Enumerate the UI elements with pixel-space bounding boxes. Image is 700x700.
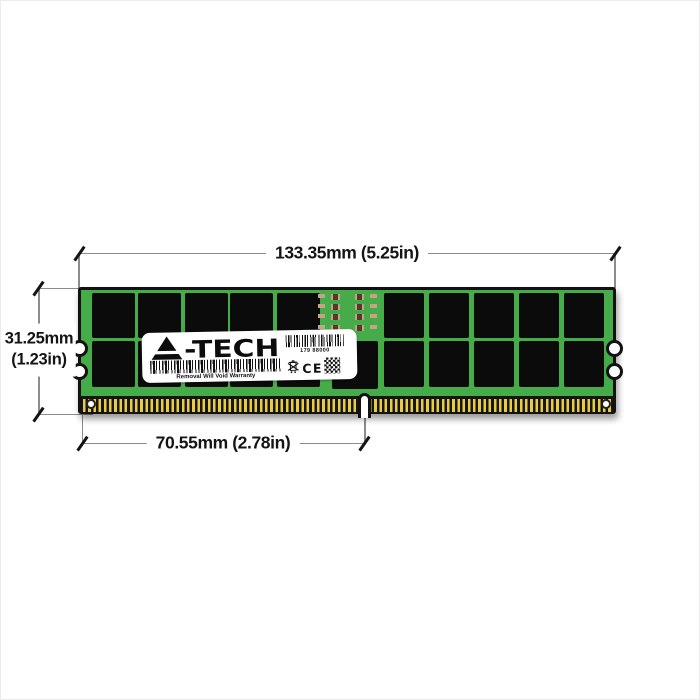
smd-capacitor [355,304,364,310]
height-dimension-label-in: (1.23in) [5,350,74,371]
atech-logo-icon: -TECH [150,333,282,361]
height-dimension-label-mm: 31.25mm [5,329,74,350]
smd-capacitor [318,314,325,318]
memory-chip [519,293,559,338]
key-notch [358,393,371,418]
edge-notch-icon [606,363,623,380]
product-image: 133.35mm (5.25in) 31.25mm (1.23in) 70.55… [0,0,700,700]
extension-line-right [614,253,616,288]
smd-capacitor [331,304,340,310]
memory-chip [564,293,604,338]
product-label: -TECH 179 88000 Removal Will Void Warran… [142,329,358,383]
memory-chip [384,341,424,387]
smd-capacitor [318,325,325,329]
mounting-hole-icon [601,399,611,409]
smd-capacitor [370,294,377,298]
smd-capacitor [355,294,364,300]
serial-number: 179 88000 [286,347,344,354]
memory-chip [138,293,181,338]
extension-line-left [78,253,80,288]
extension-line-top [38,288,79,290]
memory-chip [384,293,424,338]
gold-pins [83,399,611,412]
memory-chip [474,293,514,338]
mounting-hole-icon [86,399,96,409]
smd-capacitor [370,304,377,308]
qr-code-icon [324,357,340,373]
memory-chip [92,293,135,338]
memory-chip [429,293,469,338]
warranty-text: Removal Will Void Warranty [150,372,281,381]
brand-text: -TECH [184,334,280,361]
smd-capacitor [318,304,325,308]
width-dimension-label: 133.35mm (5.25in) [266,242,428,265]
main-barcode-icon [150,358,281,374]
smd-capacitor [370,314,377,318]
smd-capacitor [355,325,364,331]
pin-width-dimension-label: 70.55mm (2.78in) [147,432,300,455]
edge-notch-icon [606,340,623,357]
memory-chip [474,341,514,387]
smd-capacitor [331,294,340,300]
smd-capacitor [318,294,325,298]
ce-mark: CE [302,361,323,376]
serial-barcode-icon [286,334,344,347]
smd-capacitor [355,314,364,320]
memory-chip [564,341,604,387]
memory-chip [429,341,469,387]
weee-bin-icon [287,358,299,374]
memory-chip [519,341,559,387]
memory-chip [92,341,135,387]
smd-capacitor [370,325,377,329]
smd-capacitor [331,314,340,320]
